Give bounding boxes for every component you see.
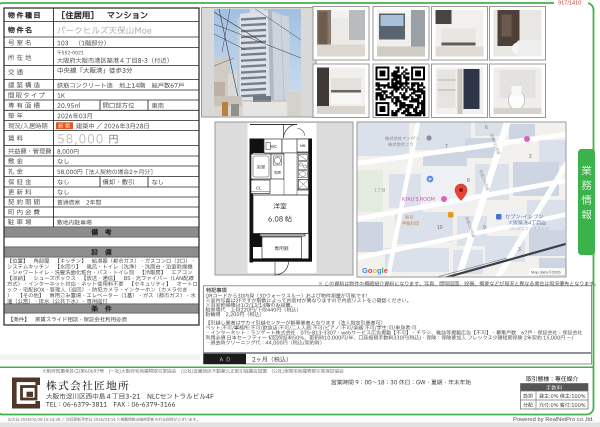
svg-text:10: 10 [437, 225, 443, 231]
svg-text:6: 6 [485, 125, 488, 131]
svg-text:7: 7 [445, 144, 448, 150]
svg-text:8: 8 [467, 178, 470, 184]
svg-text:2: 2 [529, 154, 532, 160]
svg-text:Map data ©2026: Map data ©2026 [531, 269, 561, 274]
svg-text:3: 3 [518, 247, 521, 253]
svg-text:Google: Google [362, 266, 388, 275]
svg-text:Powered by RealNetPro co.,ltd.: Powered by RealNetPro co.,ltd. [513, 417, 594, 423]
svg-text:MB: MB [300, 144, 306, 148]
svg-text:917/1410: 917/1410 [558, 1, 581, 7]
svg-text:9: 9 [483, 225, 486, 231]
svg-text:P: P [428, 177, 431, 182]
svg-text:WC: WC [270, 144, 277, 149]
svg-text:CL: CL [256, 185, 262, 190]
